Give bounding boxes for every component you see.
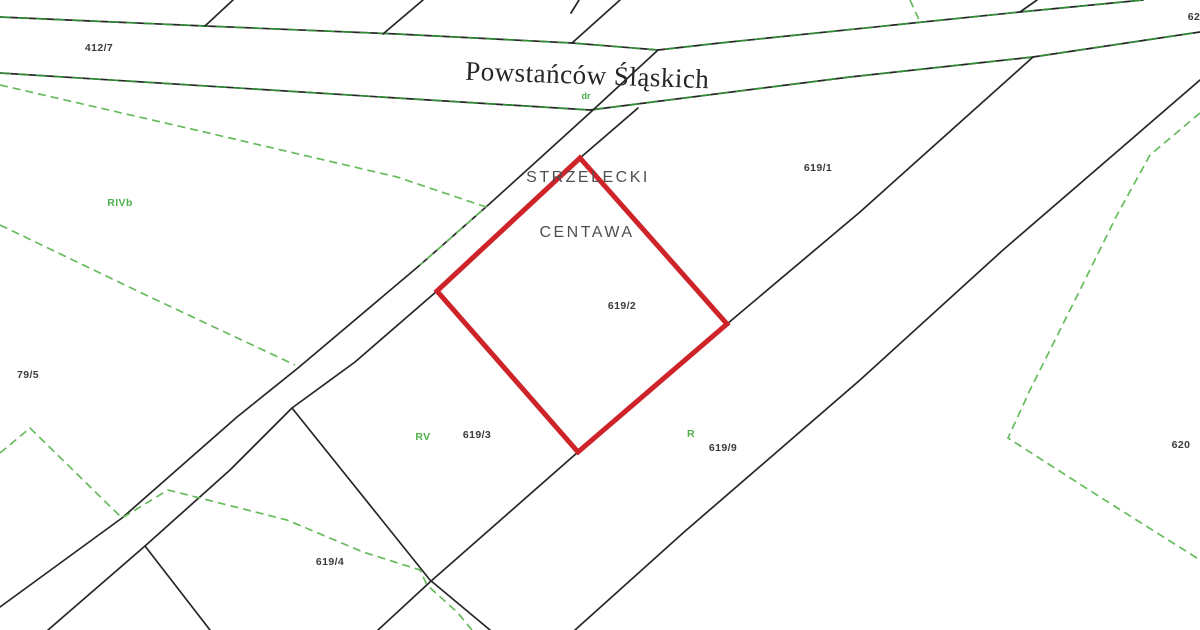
street-name-label: Powstańców Śląskich [465,56,710,95]
class-dash-northwest [0,85,486,265]
cadastral-map[interactable]: Powstańców ŚląskichdrSTRZELECKICENTAWA41… [0,0,1200,630]
boundary-parcel-619-3-south-boundary [292,408,490,630]
soil-class-label-r: R [687,428,695,440]
parcel-label-619-9: 619/9 [709,442,737,454]
road-class-label: dr [582,91,591,101]
class-dash-west [0,225,295,365]
parcel-label-619-3: 619/3 [463,429,491,441]
boundary-north-branch-1 [205,0,233,26]
district-centawa-label: CENTAWA [539,224,634,241]
parcel-label-62: 62 [1188,11,1200,23]
boundary-north-stub [571,0,579,13]
parcel-label-619-1: 619/1 [804,162,832,174]
map-canvas[interactable]: Powstańców ŚląskichdrSTRZELECKICENTAWA41… [0,0,1200,630]
parcel-label-620: 620 [1172,439,1191,451]
soil-class-label-rivb: RIVb [107,197,133,209]
district-strzelecki-label: STRZELECKI [526,169,650,186]
parcel-label-619-4: 619/4 [316,556,344,568]
parcel-label-619-2: 619/2 [608,300,636,312]
class-dash-east [1008,113,1200,560]
boundary-north-branch-3 [572,0,620,43]
soil-class-label-rv: RV [415,431,430,443]
boundary-southwest-branch [145,546,210,630]
boundary-north-branch-2 [383,0,423,34]
parcel-label-79-5: 79/5 [17,369,39,381]
parcel-label-412-7: 412/7 [85,42,113,54]
highlighted-parcel-outline[interactable] [437,158,727,452]
class-dash-north [910,0,920,22]
boundary-parcel-619-9-southeast-boundary [575,80,1200,630]
boundary-road-northwest-edge [0,50,658,607]
class-dash-southwest [0,428,472,630]
